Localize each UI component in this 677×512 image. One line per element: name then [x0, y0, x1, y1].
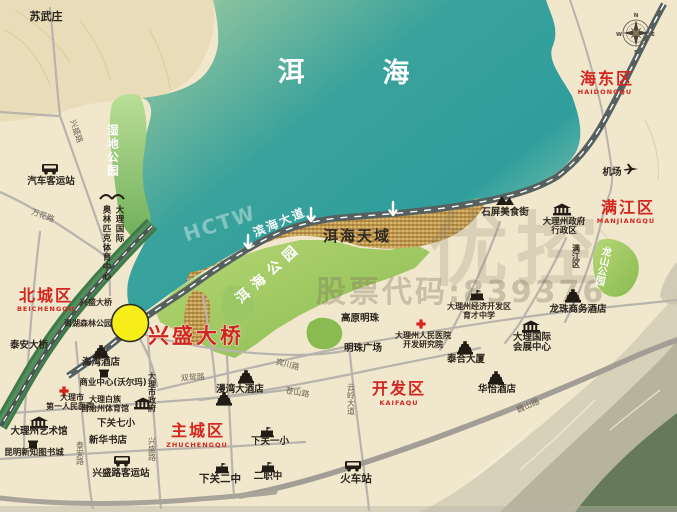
gym-label-line1: 大理白族: [89, 394, 122, 404]
yunling-avenue-label: 云岭大道: [347, 383, 356, 416]
xiaguan-2nd-label: 下关二中: [199, 472, 241, 485]
bottom-edge-shadow: [0, 506, 677, 512]
district-manjiang-pinyin: MANJIANGQU: [597, 217, 655, 225]
compass-east-letter: E: [651, 32, 655, 38]
city-gov-label: 大理市政府: [148, 371, 157, 413]
district-kaifa-pinyin: KAIFAQU: [379, 399, 418, 407]
district-beicheng-pinyin: BEICHENGQU: [17, 305, 75, 313]
train-station-label: 火车站: [340, 472, 372, 485]
hospital2-label-line2: 开发研究院: [403, 339, 443, 349]
shuangyuan-road-label: 双鸳路: [180, 371, 205, 383]
haiwan-hotel-label: 海湾酒店: [82, 356, 121, 368]
taian-bridge-label: 泰安大桥: [9, 339, 49, 351]
huayi-hotel-label: 华怡酒店: [478, 383, 517, 395]
xingsheng-bridge-big-label: 兴盛大桥: [148, 324, 244, 348]
forest-park-label: 洱湖森林公园: [64, 318, 112, 328]
dali-city-map: HCTW 优控 股票代码:839376 洱 海 湿地公园 洱海公园 龙山公园 洱…: [0, 0, 677, 512]
taian-road-label: 泰安路: [76, 440, 85, 465]
xingsheng-bus-station-label: 兴盛路客运站: [92, 467, 150, 479]
wetland-park-label: 湿地公园: [106, 123, 120, 178]
prefecture-gov-label-line2: 行政区: [550, 225, 577, 236]
district-beicheng: 北城区: [19, 286, 73, 305]
xiaguan-7th-label: 下关七小: [97, 417, 136, 429]
xingsheng-bridge-small-label: 兴盛大桥: [80, 297, 113, 307]
xingsheng-road-south-label: 兴盛路: [148, 437, 157, 461]
erhai-tianyu-label: 洱海天域: [323, 227, 391, 245]
compass-south-letter: S: [634, 50, 638, 56]
bus-station-label: 汽车客运站: [27, 175, 75, 187]
art-museum-label: 大理州艺术馆: [10, 425, 68, 437]
shiping-food-street-label: 石屏美食街: [480, 206, 529, 218]
highlight-marker-circle: [112, 305, 149, 342]
district-haidong-pinyin: HAIDONGQU: [578, 88, 632, 96]
lake-name-char2: 海: [383, 58, 410, 89]
district-zhucheng-pinyin: ZHUCHENGQU: [166, 441, 228, 449]
district-manjiang: 满江区: [601, 198, 655, 217]
district-haidong: 海东区: [580, 69, 634, 88]
book-city-label: 昆明新知图书城: [4, 447, 64, 458]
taihe-tower-label: 泰合大厦: [446, 353, 486, 365]
district-kaifa: 开发区: [372, 379, 426, 398]
hospital2-label-line1: 大理州人民医院: [395, 330, 451, 340]
olympic-label-col2: 奥林匹克体育中心: [101, 204, 112, 281]
manjiang-small-label: 满江区: [572, 243, 581, 269]
business-center-icon: [99, 370, 109, 378]
edz-label-line1: 大理州经济开发区: [447, 301, 511, 311]
lake-name-char1: 洱: [278, 57, 305, 88]
olympic-label-col1: 大理国际: [114, 204, 124, 243]
map-canvas: HCTW 优控 股票代码:839376 洱 海 湿地公园 洱海公园 龙山公园 洱…: [0, 0, 677, 512]
gym-label-line2: 自治州体育馆: [81, 403, 129, 413]
compass-north-letter: N: [634, 13, 639, 19]
xiaguan-1st-label: 下关一小: [251, 435, 290, 447]
hospital1-label-line1: 大理市: [60, 392, 84, 402]
district-zhucheng: 主城区: [171, 421, 225, 440]
gaoyuan-mingzhu-label: 高原明珠: [341, 312, 380, 324]
longzhu-hotel-label: 龙珠商务酒店: [548, 303, 607, 315]
suwuzhuang-label: 苏武庄: [30, 9, 63, 23]
airport-label: 机场: [602, 166, 622, 178]
mingzhu-square-label: 明珠广场: [344, 342, 383, 354]
expo-label-line2: 会展中心: [513, 341, 552, 353]
xinhua-bookstore-label: 新华书店: [89, 434, 128, 446]
compass-west-letter: W: [616, 32, 622, 38]
manwan-hotel-label: 漫湾大酒店: [216, 383, 264, 395]
erzhizhong-label: 二职中: [254, 470, 283, 482]
edz-label-line2: 育才中学: [463, 310, 495, 320]
business-center-label: 商业中心(沃尔玛): [79, 377, 146, 388]
